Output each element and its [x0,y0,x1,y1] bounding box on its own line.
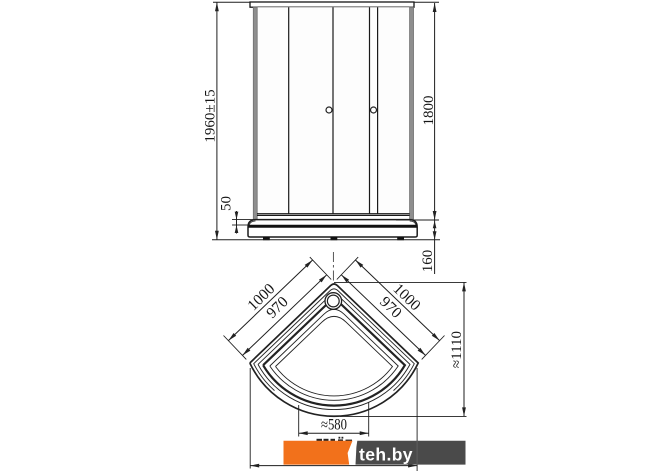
svg-text:160: 160 [420,250,436,273]
svg-text:50: 50 [218,196,234,211]
svg-text:teh.by: teh.by [359,445,413,465]
svg-text:≈1110: ≈1110 [449,331,465,368]
svg-text:1800: 1800 [421,96,437,126]
svg-text:1960±15: 1960±15 [202,89,218,142]
svg-text:≈580: ≈580 [321,417,347,434]
